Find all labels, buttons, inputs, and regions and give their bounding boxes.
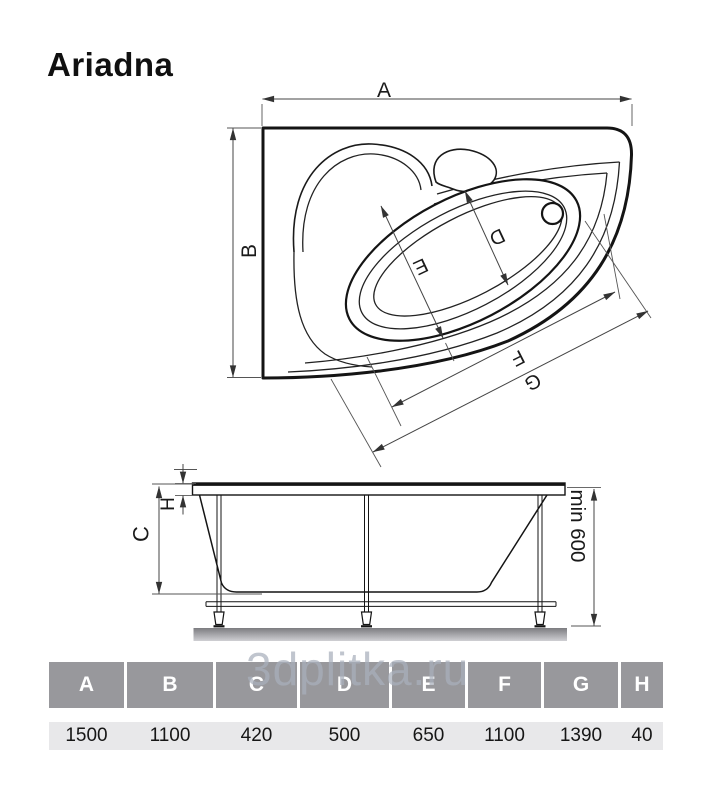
side-view: C H min 600 xyxy=(129,464,602,641)
dimension-min600-label: min 600 xyxy=(566,490,589,563)
frame-legs xyxy=(217,496,542,613)
dimension-c-label: C xyxy=(129,526,154,542)
table-header-cell: B xyxy=(127,662,213,708)
table-value-row: 1500 1100 420 500 650 1100 1390 40 xyxy=(49,722,663,750)
frame-rail xyxy=(206,602,556,607)
table-value-cell: 1100 xyxy=(468,722,541,750)
table-value-cell: 40 xyxy=(621,722,663,750)
dimension-g-label: G xyxy=(521,368,545,395)
table-value-cell: 420 xyxy=(216,722,297,750)
bathtub-dimension-drawing: Ariadna xyxy=(0,0,717,800)
dimension-a xyxy=(262,104,632,126)
table-value-cell: 1390 xyxy=(544,722,618,750)
table-value-cell: 650 xyxy=(392,722,465,750)
table-header-cell: H xyxy=(621,662,663,708)
top-view: A B E D F xyxy=(227,79,651,467)
table-value-cell: 500 xyxy=(300,722,389,750)
drain-hole xyxy=(542,203,563,224)
watermark-text: 3dplitka.ru xyxy=(246,642,469,696)
dimension-b-label: B xyxy=(238,244,261,258)
tub-body-side xyxy=(200,495,548,592)
table-header-cell: G xyxy=(544,662,618,708)
ground-line xyxy=(194,628,568,641)
table-header-cell: A xyxy=(49,662,124,708)
dimension-f-label: F xyxy=(507,345,528,370)
adjustable-feet xyxy=(214,612,546,626)
table-value-cell: 1500 xyxy=(49,722,124,750)
table-value-cell: 1100 xyxy=(127,722,213,750)
table-header-cell: F xyxy=(468,662,541,708)
dimension-h-label: H xyxy=(158,497,179,511)
dimension-a-label: A xyxy=(377,79,391,102)
